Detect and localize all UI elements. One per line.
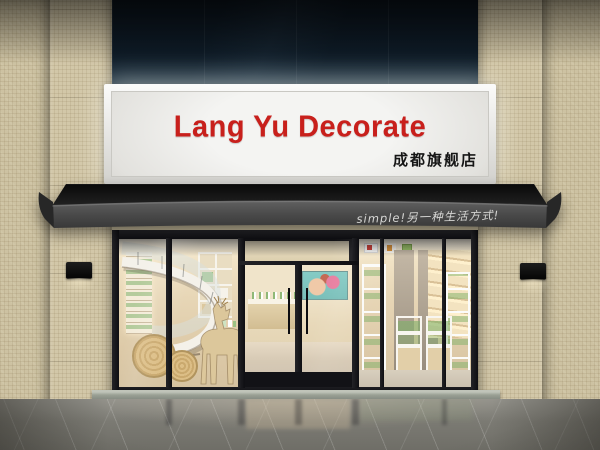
- door-handle-right: [306, 288, 308, 334]
- mullion-right-window-b: [442, 238, 446, 387]
- storefront-scene: Lang Yu Decorate 成都旗舰店: [0, 0, 600, 450]
- marble-floor: [0, 399, 600, 450]
- floor-reflection-door: [246, 399, 350, 429]
- right-window-floor: [356, 370, 474, 388]
- signboard-panel: Lang Yu Decorate 成都旗舰店: [111, 91, 489, 177]
- interior-poster: [302, 271, 348, 300]
- floor-reflection-pillars: [0, 399, 600, 450]
- storefront: [112, 230, 478, 398]
- awning: simple!另一种生活方式!: [36, 178, 564, 240]
- door-bottom-rail: [245, 372, 352, 387]
- wall-lamp-left: [66, 262, 92, 279]
- door-stile-center: [295, 261, 302, 387]
- mullion-right-window-a: [380, 238, 384, 387]
- sign-subtitle: 成都旗舰店: [393, 149, 478, 170]
- display-counter: [248, 299, 300, 329]
- storefront-frame-right: [471, 230, 478, 398]
- signboard: Lang Yu Decorate 成都旗舰店: [104, 84, 496, 184]
- awning-endcap-left: [39, 192, 54, 228]
- awning-endcap-right: [546, 192, 561, 228]
- brand-plaque-red-mark: [367, 245, 372, 250]
- upper-glass-panel: [112, 0, 478, 84]
- brand-plaque-orange-mark: [387, 245, 392, 251]
- floor-reflection-mullions: [0, 399, 600, 425]
- sign-title: Lang Yu Decorate: [112, 110, 488, 145]
- transom-rail: [238, 261, 359, 265]
- door-handle-left: [288, 288, 290, 334]
- brand-plaque-red: [364, 243, 378, 253]
- floor-reflection-shelves: [360, 399, 472, 421]
- mullion-left-window: [166, 238, 172, 388]
- wall-lamp-right: [520, 263, 546, 280]
- storefront-frame-left: [112, 230, 119, 398]
